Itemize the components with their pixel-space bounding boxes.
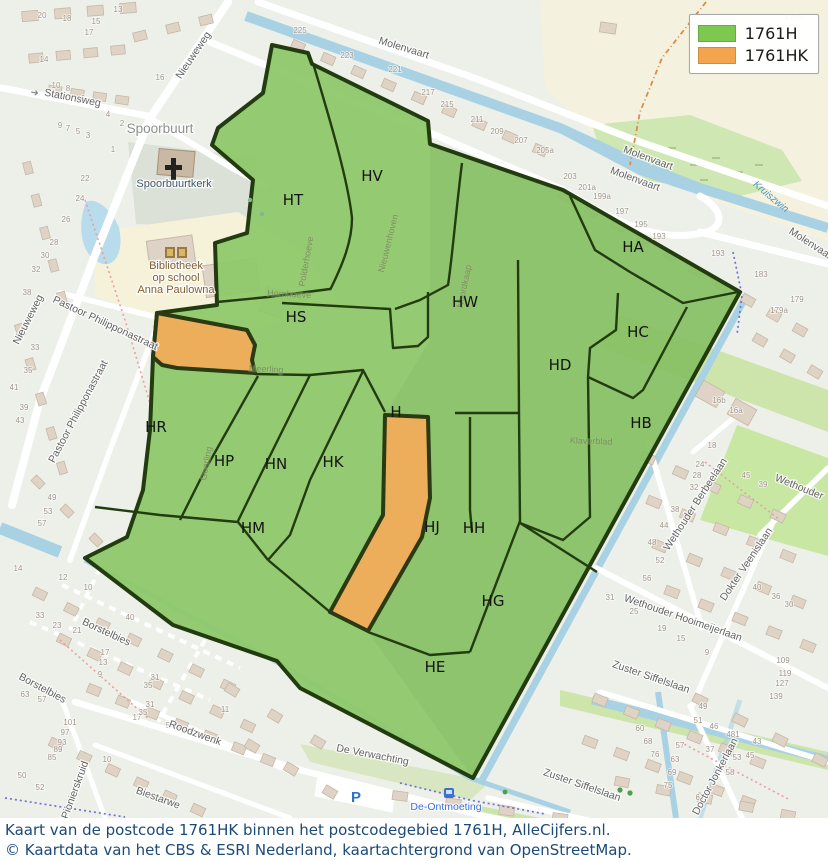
house-number: 193 (652, 232, 666, 241)
house-number: 24 (696, 460, 705, 469)
house-number: 19 (658, 624, 667, 633)
region-label: HV (361, 167, 383, 185)
house-number: 215 (440, 100, 454, 109)
house-number: 3 (86, 131, 91, 140)
region-label: HD (549, 356, 572, 374)
house-number: 85 (48, 753, 57, 762)
house-number: 9 (98, 670, 103, 679)
region-label: HE (425, 658, 446, 676)
region-label: H (390, 403, 401, 421)
house-number: 17 (101, 648, 110, 657)
house-number: 51 (694, 716, 703, 725)
house-number: 32 (32, 265, 41, 274)
legend-swatch-orange (698, 47, 736, 64)
transit-label: De-Ontmoeting (410, 801, 481, 813)
house-number: 16b (712, 396, 726, 405)
library-label: op school (152, 272, 199, 284)
house-number: 18 (63, 14, 72, 23)
house-number: 40 (126, 613, 135, 622)
region-label: HC (627, 323, 649, 341)
building (22, 10, 39, 21)
building (499, 805, 515, 816)
house-number: 209 (490, 127, 504, 136)
house-number: 68 (644, 737, 653, 746)
house-number: 28 (50, 238, 59, 247)
house-number: 39 (20, 403, 29, 412)
region-label: HH (463, 519, 486, 537)
house-number: 7 (66, 124, 71, 133)
house-number: 23 (53, 621, 62, 630)
house-number: 205a (536, 146, 554, 155)
house-number: 10 (84, 583, 93, 592)
house-number: 201a (578, 183, 596, 192)
house-number: 179 (790, 295, 804, 304)
house-number: 75 (664, 781, 673, 790)
house-number: 9 (58, 121, 63, 130)
house-number: 109 (776, 656, 790, 665)
house-number: 30 (41, 251, 50, 260)
house-number: 119 (779, 669, 792, 678)
house-number: 53 (44, 507, 53, 516)
house-number: 49 (48, 493, 57, 502)
house-number: 10 (103, 755, 112, 764)
region-label: HG (482, 592, 505, 610)
house-number: 9 (705, 648, 710, 657)
street-label: Klaverblad (570, 435, 613, 446)
building (83, 48, 98, 58)
house-number: 203 (563, 172, 577, 181)
house-number: 207 (514, 136, 528, 145)
region-label: HW (452, 293, 478, 311)
house-number: 44 (660, 521, 669, 530)
house-number: 18 (708, 441, 717, 450)
house-number: 60 (636, 724, 645, 733)
house-number: 17 (85, 28, 94, 37)
legend-row-1761hk: 1761HK (698, 44, 808, 66)
house-number: 139 (769, 692, 783, 701)
caption: Kaart van de postcode 1761HK binnen het … (0, 818, 828, 861)
library-label: Bibliotheek (149, 260, 203, 272)
house-number: 15 (677, 634, 686, 643)
house-number: 38 (671, 505, 680, 514)
house-number: 21 (73, 626, 82, 635)
region-label: HR (145, 418, 167, 436)
house-number: 24 (76, 194, 85, 203)
house-number: 14 (14, 564, 23, 573)
map-svg: P ➜ 201815171314161086429753122242628303… (0, 0, 828, 819)
region-label: HN (265, 455, 288, 473)
house-number: 30 (785, 600, 794, 609)
house-number: 2 (120, 119, 125, 128)
house-number: 217 (421, 88, 435, 97)
house-number: 31 (606, 593, 615, 602)
building (56, 50, 71, 60)
map-screenshot: P ➜ 201815171314161086429753122242628303… (0, 0, 828, 861)
house-number: 33 (31, 343, 40, 352)
house-number: 11 (221, 705, 230, 714)
region-label: HB (630, 414, 652, 432)
house-number: 48 (648, 538, 657, 547)
house-number: 37 (706, 745, 715, 754)
house-number: 40 (753, 583, 762, 592)
house-number: 57 (676, 741, 685, 750)
bus-stop-icon (444, 788, 454, 798)
house-number: 12 (59, 573, 68, 582)
street-label: Meerling (249, 363, 284, 375)
legend-label: 1761H (745, 24, 798, 43)
house-number: 49 (699, 702, 708, 711)
house-number: 41 (10, 383, 19, 392)
building (599, 22, 616, 34)
building (392, 791, 408, 802)
house-number: 22 (81, 174, 90, 183)
caption-line-2: © Kaartdata van het CBS & ESRI Nederland… (5, 840, 828, 860)
house-number: 197 (615, 207, 629, 216)
house-number: 16a (729, 406, 743, 415)
house-number: 63 (671, 755, 680, 764)
building (115, 95, 129, 105)
library-label: Anna Paulowna (137, 284, 215, 296)
region-label: HA (622, 238, 644, 256)
house-number: 193 (711, 249, 725, 258)
house-number: 13 (114, 5, 123, 14)
house-number: 20 (38, 11, 47, 20)
house-number: 1 (111, 145, 116, 154)
house-number: 28 (693, 471, 702, 480)
house-number: 43 (753, 737, 762, 746)
house-number: 52 (36, 783, 45, 792)
house-number: 16 (156, 73, 165, 82)
legend-swatch-green (698, 25, 736, 42)
building (111, 45, 126, 55)
house-number: 63 (21, 690, 30, 699)
house-number: 36 (772, 592, 781, 601)
house-number: 183 (754, 270, 768, 279)
house-number: 4 (106, 110, 111, 119)
region-label: HK (322, 453, 344, 471)
house-number: 221 (388, 65, 402, 74)
house-number: 50 (18, 771, 27, 780)
region-label: HS (286, 308, 307, 326)
house-number: 179a (770, 306, 788, 315)
house-number: 35 (139, 708, 148, 717)
house-number: 56 (643, 574, 652, 583)
parking-icon: P (351, 789, 361, 806)
caption-line-1: Kaart van de postcode 1761HK binnen het … (5, 820, 828, 840)
house-number: 69 (668, 768, 677, 777)
house-number: 58 (726, 768, 735, 777)
legend: 1761H 1761HK (689, 14, 819, 74)
locality-label: Spoorbuurt (127, 121, 194, 136)
house-number: 26 (62, 215, 71, 224)
house-number: 38 (23, 288, 32, 297)
house-number: 97 (61, 728, 70, 737)
house-number: 35 (24, 366, 33, 375)
house-number: 15 (92, 17, 101, 26)
house-number: 76 (651, 750, 660, 759)
house-number: 195 (634, 220, 648, 229)
church-label: Spoorbuurtkerk (136, 178, 212, 190)
legend-label: 1761HK (745, 46, 808, 65)
house-number: 57 (38, 519, 47, 528)
map-canvas[interactable]: P ➜ 201815171314161086429753122242628303… (0, 0, 828, 819)
region-label: HM (241, 519, 265, 537)
house-number: 101 (63, 718, 77, 727)
house-number: 45 (746, 751, 755, 760)
house-number: 39 (759, 480, 768, 489)
house-number: 199a (593, 192, 611, 201)
house-number: 223 (340, 51, 354, 60)
legend-row-1761h: 1761H (698, 22, 808, 44)
house-number: 5 (76, 127, 81, 136)
house-number: 225 (293, 26, 307, 35)
house-number: 45 (742, 471, 751, 480)
house-number: 127 (775, 679, 789, 688)
house-number: 14 (40, 55, 49, 64)
region-label: HT (283, 191, 304, 209)
house-number: 52 (656, 556, 665, 565)
house-number: 33 (36, 611, 45, 620)
region-label: HP (214, 452, 234, 470)
house-number: 46 (710, 722, 719, 731)
house-number: 211 (471, 115, 484, 124)
region-label: HJ (424, 518, 440, 536)
building (87, 5, 104, 16)
house-number: 35 (144, 681, 153, 690)
house-number: 43 (16, 416, 25, 425)
house-number: 13 (99, 658, 108, 667)
